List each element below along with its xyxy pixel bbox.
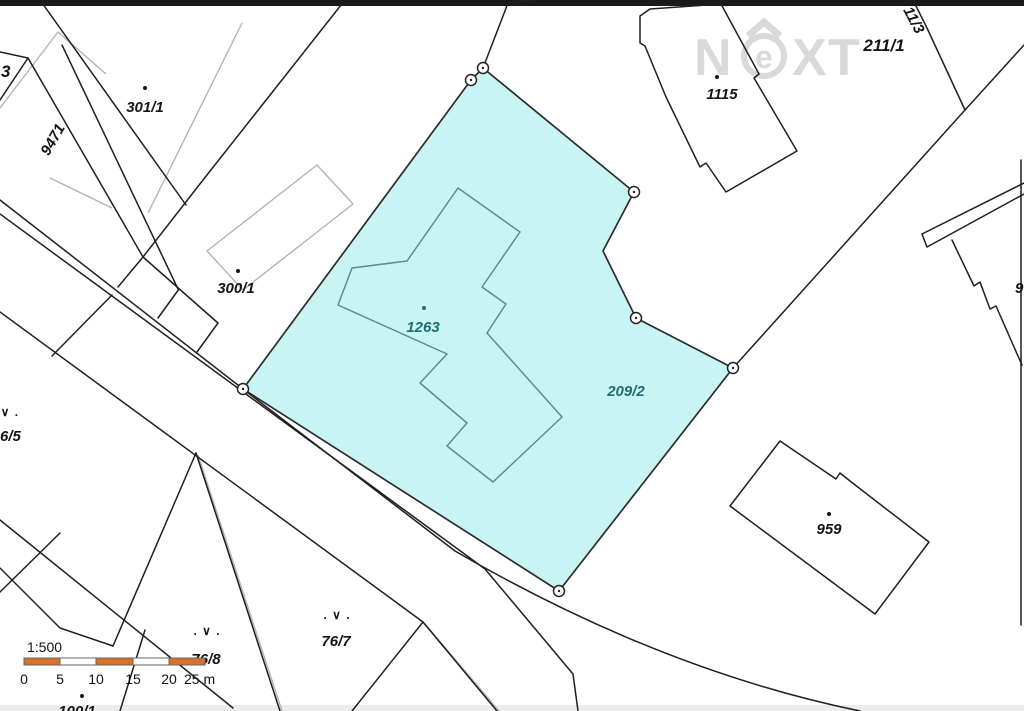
scale-bar-segment xyxy=(60,658,96,665)
highlighted-parcel-209-2[interactable] xyxy=(243,68,733,591)
vertex-marker xyxy=(629,187,640,198)
vertex-marker xyxy=(728,363,739,374)
parcel-label-3: 3 xyxy=(1,62,11,81)
scale-bar-segment xyxy=(96,658,133,665)
watermark-letter-n: N xyxy=(694,29,732,87)
building-label-1263: 1263 xyxy=(406,319,440,336)
parcel-label-9-cut: 9 xyxy=(1015,280,1024,297)
scale-tick-0: 0 xyxy=(20,671,28,687)
building-label-959: 959 xyxy=(816,521,842,538)
watermark-letter-t: T xyxy=(828,29,860,87)
scale-tick-10: 10 xyxy=(88,671,104,687)
bottom-edge-bar xyxy=(0,705,1024,711)
building-label-1115: 1115 xyxy=(706,86,738,103)
scale-tick-5: 5 xyxy=(56,671,64,687)
parcel-label-211-1: 211/1 xyxy=(862,36,904,55)
watermark-letter-e: e xyxy=(755,39,773,75)
scale-tick-25m: 25 m xyxy=(184,671,215,687)
parcel-label-100-1: 100/1 xyxy=(58,703,96,711)
parcel-label-301-1: 301/1 xyxy=(126,99,164,116)
parcel-label-11-3: 11/3 xyxy=(899,4,928,37)
parcel-label-9471: 9471 xyxy=(37,121,68,158)
parcel-label-76-7: 76/7 xyxy=(321,633,351,650)
vertex-marker xyxy=(238,384,249,395)
parcel-label-76-5: 6/5 xyxy=(0,428,22,445)
scale-bar-segment xyxy=(133,658,169,665)
landuse-symbol: . ∨ . xyxy=(193,624,220,638)
scale-bar: 1:500 0 5 10 15 20 25 m xyxy=(20,639,215,687)
vertex-marker xyxy=(478,63,489,74)
cadastral-map-viewport: N e X T xyxy=(0,0,1024,711)
parcel-label-209-2: 209/2 xyxy=(606,383,645,400)
landuse-symbol: . ∨ . xyxy=(0,405,19,419)
landuse-symbol: . ∨ . xyxy=(323,608,350,622)
vertex-marker xyxy=(466,75,477,86)
cadastral-map: N e X T xyxy=(0,0,1024,711)
vertex-marker xyxy=(554,586,565,597)
scale-tick-20: 20 xyxy=(161,671,177,687)
vertex-marker xyxy=(631,313,642,324)
scale-bar-segment xyxy=(24,658,60,665)
scale-ratio-label: 1:500 xyxy=(27,639,62,655)
watermark-letter-x: X xyxy=(792,29,827,87)
parcel-label-300-1: 300/1 xyxy=(217,280,255,297)
scale-tick-15: 15 xyxy=(125,671,141,687)
scale-bar-segment xyxy=(169,658,205,665)
